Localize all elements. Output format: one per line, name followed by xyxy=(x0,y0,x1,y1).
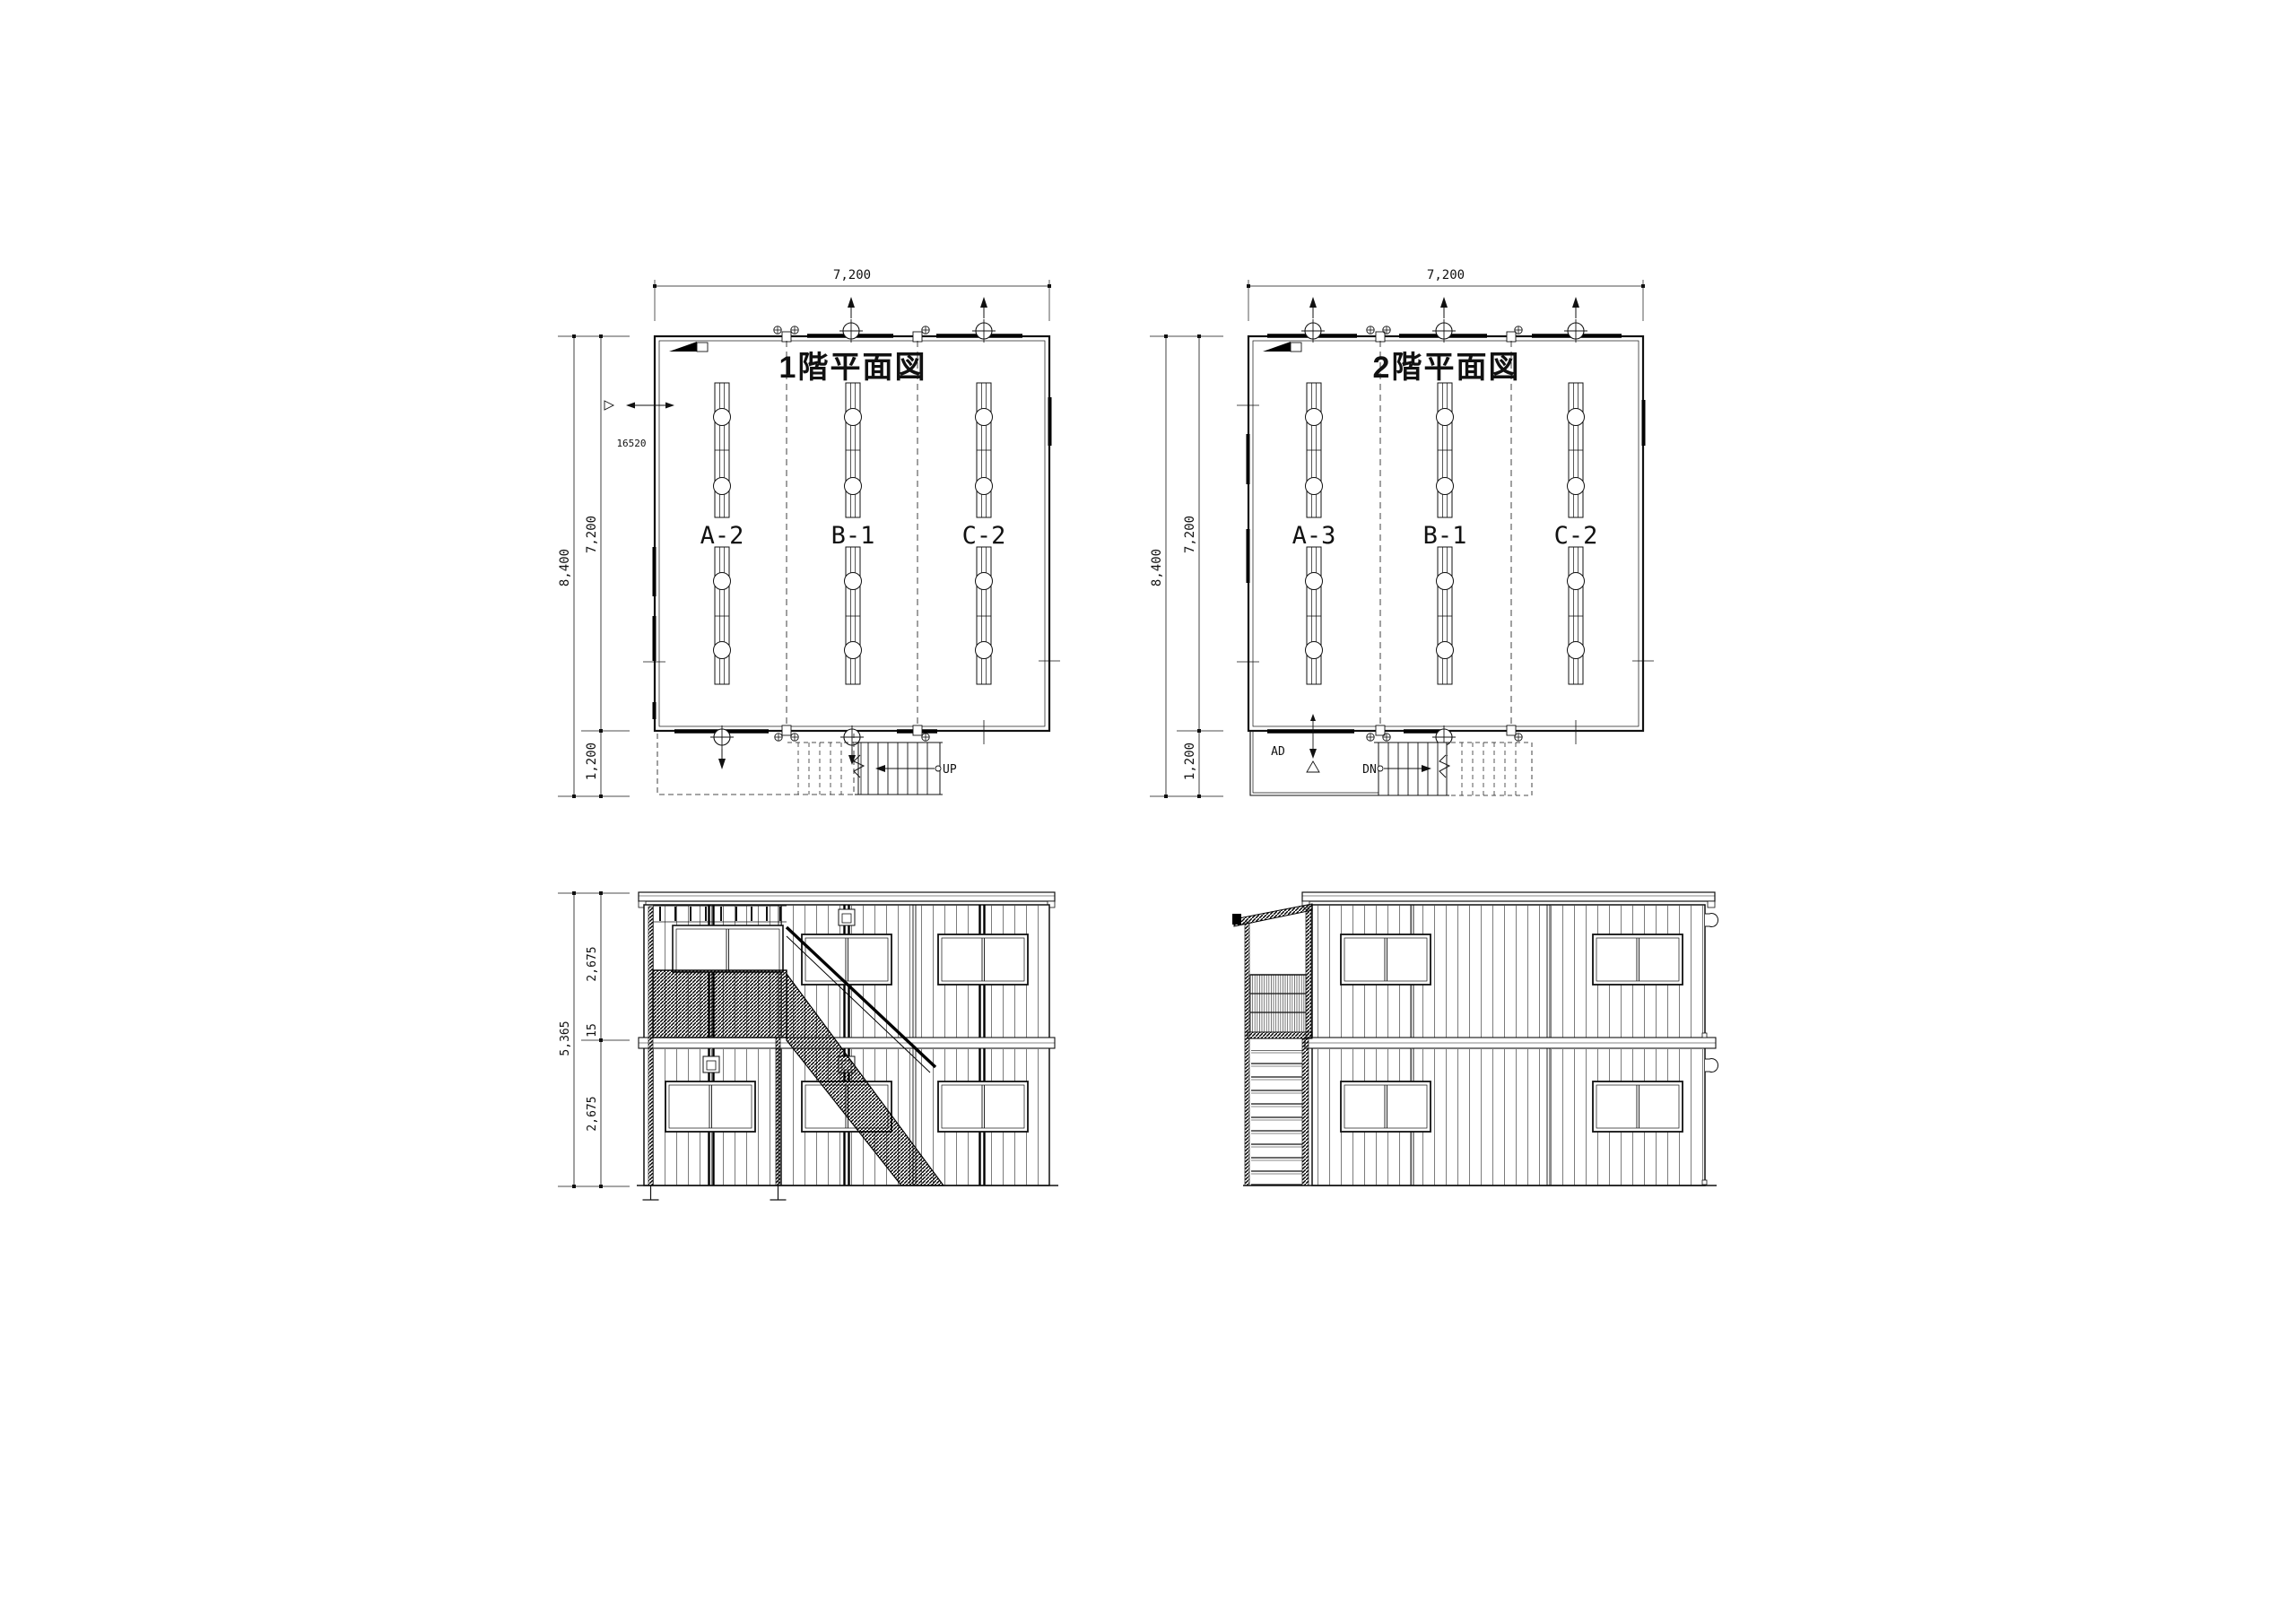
plan1-dim-total: 8,400 xyxy=(558,549,572,586)
plan2-stair-dn-label: DN xyxy=(1362,763,1377,777)
elev-dim-joint: 15 xyxy=(586,1023,599,1038)
stair-post-right xyxy=(1306,909,1311,1038)
side-roof-band xyxy=(1302,892,1715,901)
plan1-bay-a-label: A-2 xyxy=(700,522,744,550)
plan2-dim-total: 8,400 xyxy=(1150,549,1164,586)
plan2-dim-top: 7,200 xyxy=(1247,268,1645,321)
plan2-dim-left: 8,400 7,200 1,200 xyxy=(1150,334,1223,798)
side-external-stair xyxy=(1232,904,1312,1185)
floor-plan-1: 7,200 8,400 7,200 1,200 xyxy=(558,268,1060,798)
drawing-sheet: 7,200 8,400 7,200 1,200 xyxy=(0,0,2296,1624)
plan1-stair-up-label: UP xyxy=(943,763,957,777)
plan1-window-tag-text: 16520 xyxy=(616,438,646,449)
plan2-bay-c-label: C-2 xyxy=(1554,522,1598,550)
plan1-bay-b-label: B-1 xyxy=(831,522,875,550)
plan1-bay-c-label: C-2 xyxy=(962,522,1006,550)
plan2-bay-b-label: B-1 xyxy=(1423,522,1467,550)
elev-dim-left: 5,365 2,675 15 2,675 xyxy=(558,891,630,1188)
plan2-title: 2階平面図 xyxy=(1373,351,1521,385)
architectural-drawing: 7,200 8,400 7,200 1,200 xyxy=(0,0,2296,1624)
plan1-dim-left: 8,400 7,200 1,200 xyxy=(558,334,630,798)
stair-landing-panel xyxy=(653,970,787,1038)
elev-dim-lower: 2,675 xyxy=(586,1096,599,1131)
lashing-hook-icon xyxy=(1705,1059,1718,1073)
stair-landing-slab xyxy=(1248,1032,1312,1038)
plan1-porch-stair: UP xyxy=(657,734,957,795)
elevation-front: 5,365 2,675 15 2,675 xyxy=(558,891,1058,1200)
railing-mesh-panel xyxy=(1250,975,1306,1032)
elev-dim-upper: 2,675 xyxy=(586,946,599,981)
stair-stringer xyxy=(1302,1038,1309,1185)
plan1-dim-porch: 1,200 xyxy=(585,743,599,780)
plan1-dim-top: 7,200 xyxy=(653,268,1051,321)
plan2-dim-width: 7,200 xyxy=(1427,268,1465,282)
stair-post-left xyxy=(1245,922,1249,1185)
elevation-side xyxy=(1232,892,1718,1185)
landing-door xyxy=(673,925,783,972)
plan2-dim-porch: 1,200 xyxy=(1183,743,1197,780)
plan2-dim-main: 7,200 xyxy=(1183,516,1197,553)
floor-plan-2: 7,200 8,400 7,200 1,200 xyxy=(1150,268,1654,798)
elev-dim-total: 5,365 xyxy=(559,1020,572,1055)
level-triangle-mark xyxy=(1307,761,1319,772)
side-floor-band xyxy=(1305,1038,1716,1048)
plan1-title: 1階平面図 xyxy=(779,351,927,385)
front-floor-band xyxy=(639,1038,1055,1048)
plan2-duct-label: AD xyxy=(1271,745,1285,759)
plan2-bay-a-label: A-3 xyxy=(1292,522,1336,550)
stair-treads xyxy=(1251,1050,1302,1185)
plan1-dim-main: 7,200 xyxy=(585,516,599,553)
lashing-hook-icon xyxy=(1705,914,1718,927)
front-roof-band xyxy=(639,892,1055,901)
plan1-dim-width: 7,200 xyxy=(833,268,871,282)
